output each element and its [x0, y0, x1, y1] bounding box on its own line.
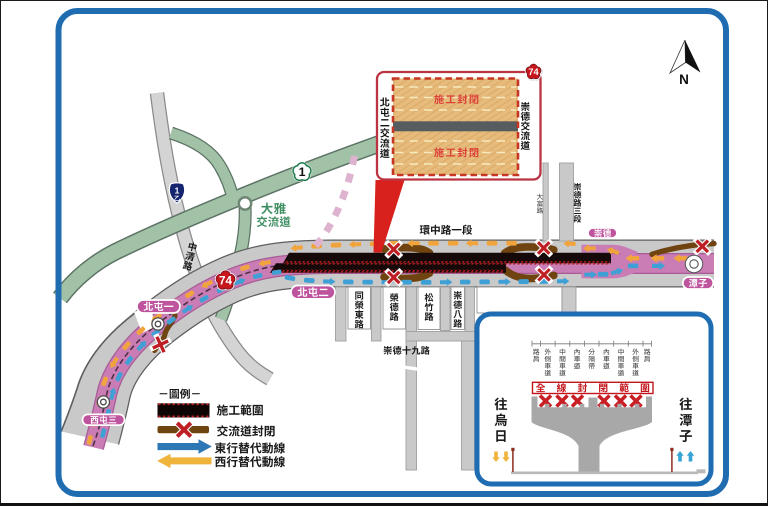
- svg-text:74: 74: [528, 67, 539, 77]
- svg-text:1: 1: [175, 186, 180, 196]
- svg-text:1: 1: [299, 165, 306, 179]
- svg-text:N: N: [679, 72, 689, 87]
- svg-text:74: 74: [219, 275, 233, 288]
